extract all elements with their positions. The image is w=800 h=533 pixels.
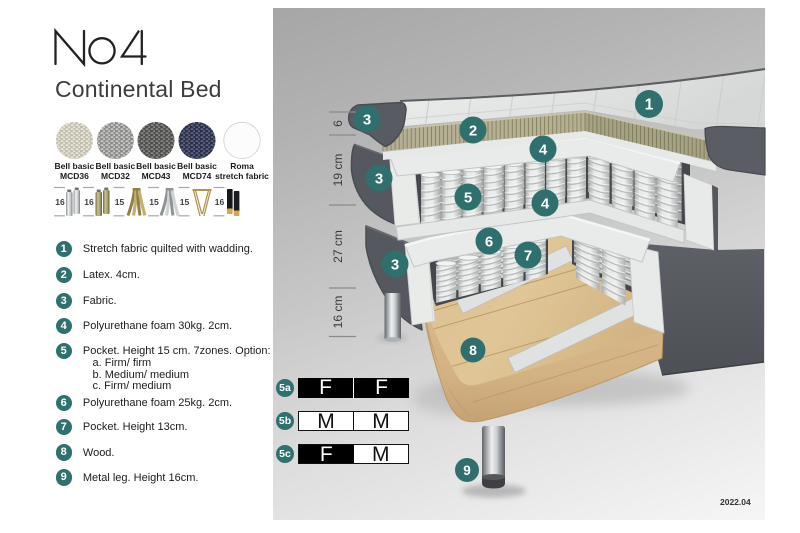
svg-text:27 cm: 27 cm [331, 230, 345, 263]
svg-text:8: 8 [469, 342, 477, 358]
svg-text:9: 9 [463, 463, 471, 478]
svg-text:3: 3 [363, 111, 371, 128]
svg-text:6: 6 [485, 233, 493, 250]
svg-text:1: 1 [645, 97, 654, 114]
svg-text:3: 3 [375, 170, 383, 187]
svg-text:7: 7 [524, 247, 532, 264]
svg-text:16 cm: 16 cm [331, 296, 345, 329]
svg-text:6: 6 [331, 120, 345, 127]
svg-text:15: 15 [180, 197, 190, 207]
svg-text:4: 4 [539, 141, 548, 158]
svg-text:16: 16 [215, 197, 225, 207]
svg-text:4: 4 [541, 195, 550, 212]
svg-text:5: 5 [464, 189, 472, 206]
svg-text:16: 16 [55, 197, 65, 207]
svg-text:15: 15 [115, 197, 125, 207]
svg-text:15: 15 [149, 197, 159, 207]
svg-text:19 cm: 19 cm [331, 154, 345, 187]
svg-text:16: 16 [84, 197, 94, 207]
svg-text:2: 2 [469, 122, 477, 139]
svg-text:3: 3 [391, 256, 399, 273]
